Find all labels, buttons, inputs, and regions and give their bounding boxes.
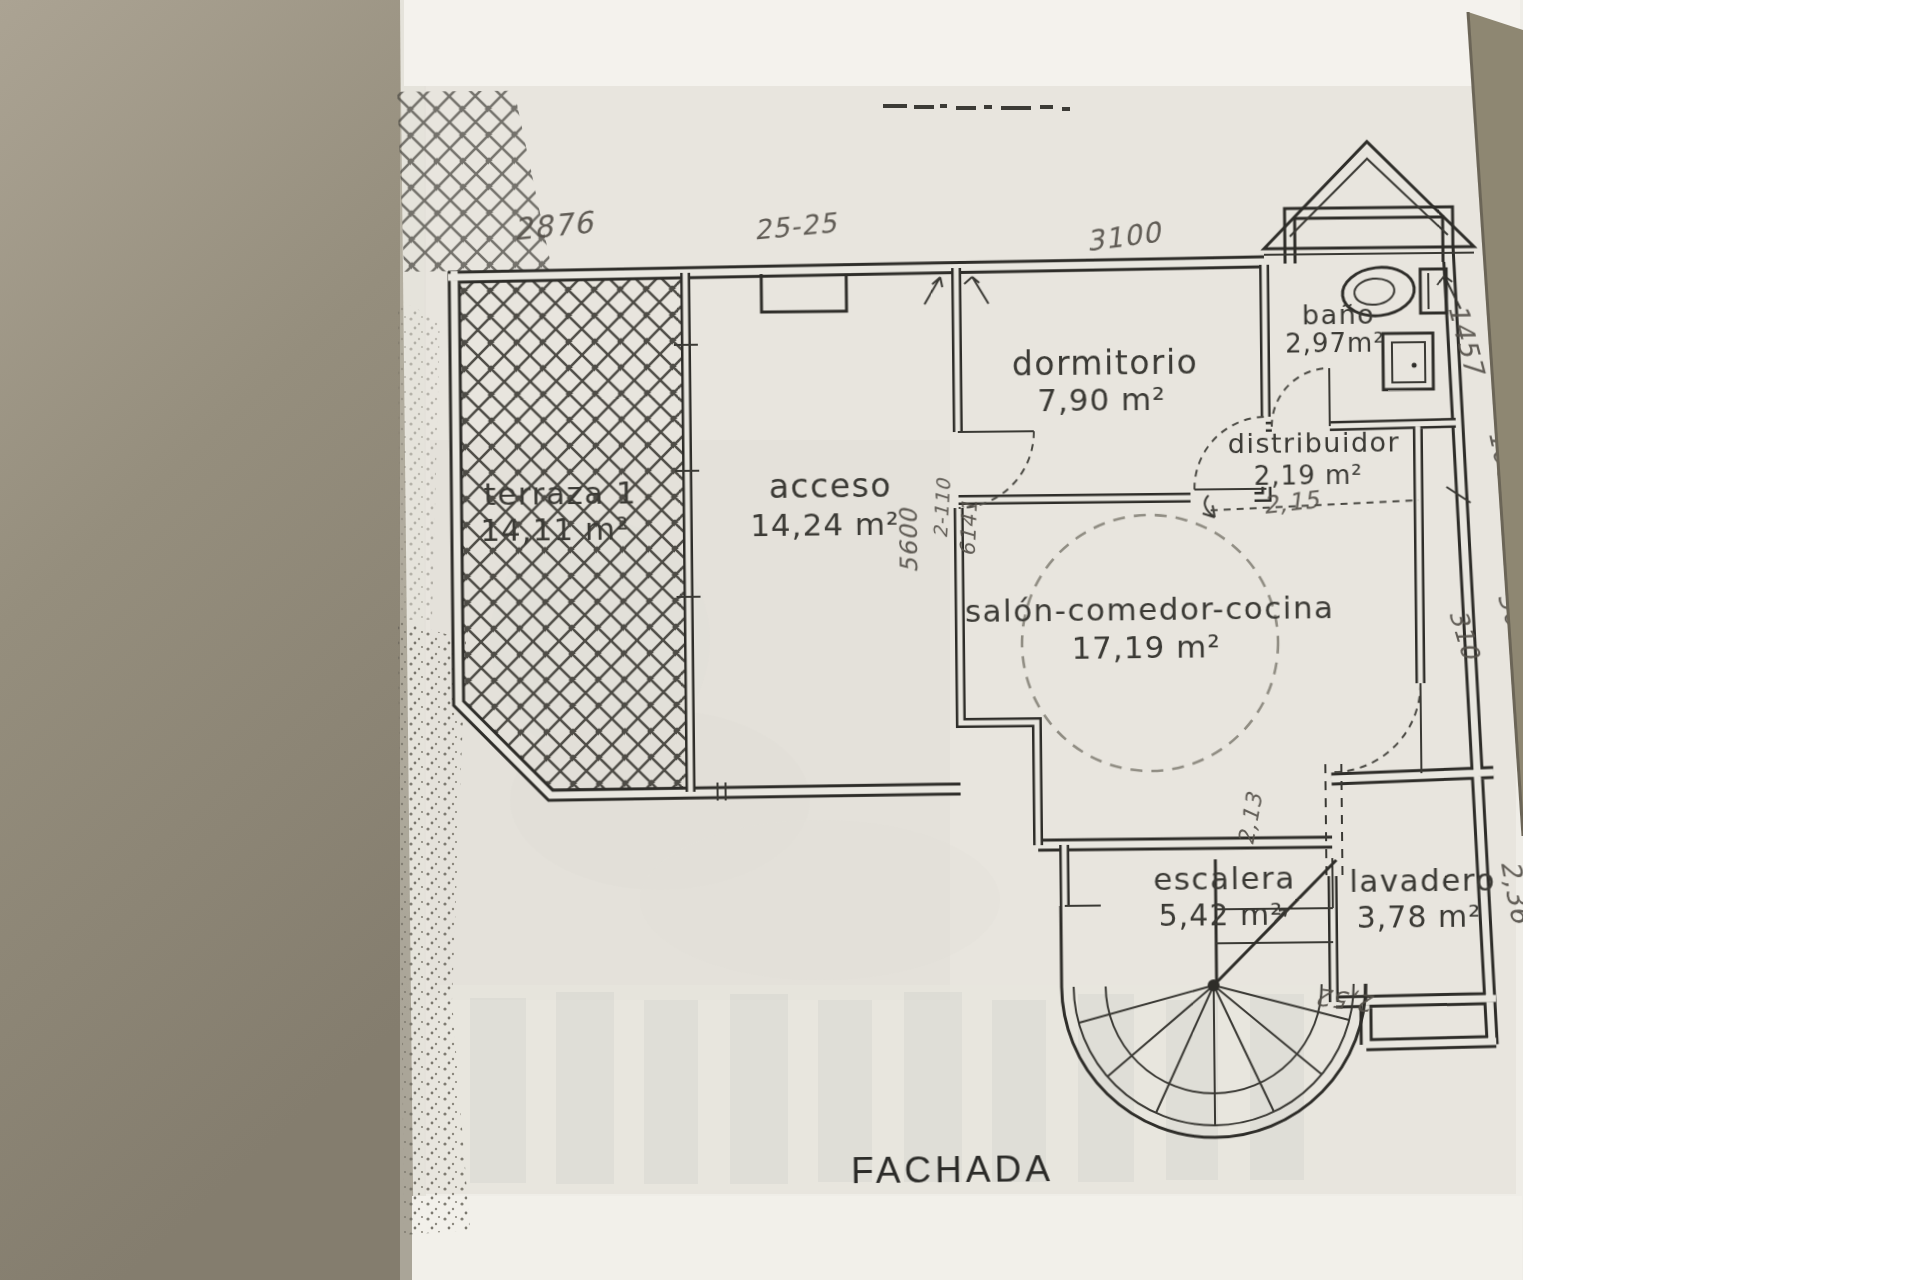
hw-dim-6141: 6141 <box>956 499 982 557</box>
room-area-escalera: 5,42 m² <box>1158 897 1283 933</box>
desk-surface-left <box>0 0 416 1280</box>
room-area-terraza: 14,11 m² <box>480 510 630 548</box>
room-label-lavadero: lavadero <box>1349 861 1496 899</box>
room-label-bano: baño <box>1302 299 1376 331</box>
hw-dim-5600: 5600 <box>895 507 924 573</box>
room-label-escalera: escalera <box>1153 859 1296 896</box>
photo-of-floor-plan: terraza 1 14,11 m² acceso 14,24 m² dormi… <box>0 0 1920 1280</box>
room-label-salon: salón-comedor-cocina <box>965 589 1335 629</box>
room-label-acceso: acceso <box>769 466 893 506</box>
room-area-acceso: 14,24 m² <box>750 506 900 544</box>
floor-plan-photo-canvas: terraza 1 14,11 m² acceso 14,24 m² dormi… <box>0 0 1920 1280</box>
room-label-dormitorio: dormitorio <box>1012 342 1199 383</box>
room-label-terraza: terraza 1 <box>483 474 637 512</box>
room-area-bano: 2,97m² <box>1285 328 1385 359</box>
room-label-distribuidor: distribuidor <box>1228 426 1401 459</box>
room-area-dormitorio: 7,90 m² <box>1037 381 1166 418</box>
room-area-lavadero: 3,78 m² <box>1356 899 1481 935</box>
fachada-caption: FACHADA <box>851 1148 1054 1191</box>
room-area-salon: 17,19 m² <box>1071 628 1221 666</box>
hw-dim-2-110: 2-110 <box>929 477 955 539</box>
photo-right-margin <box>1523 0 1920 1280</box>
